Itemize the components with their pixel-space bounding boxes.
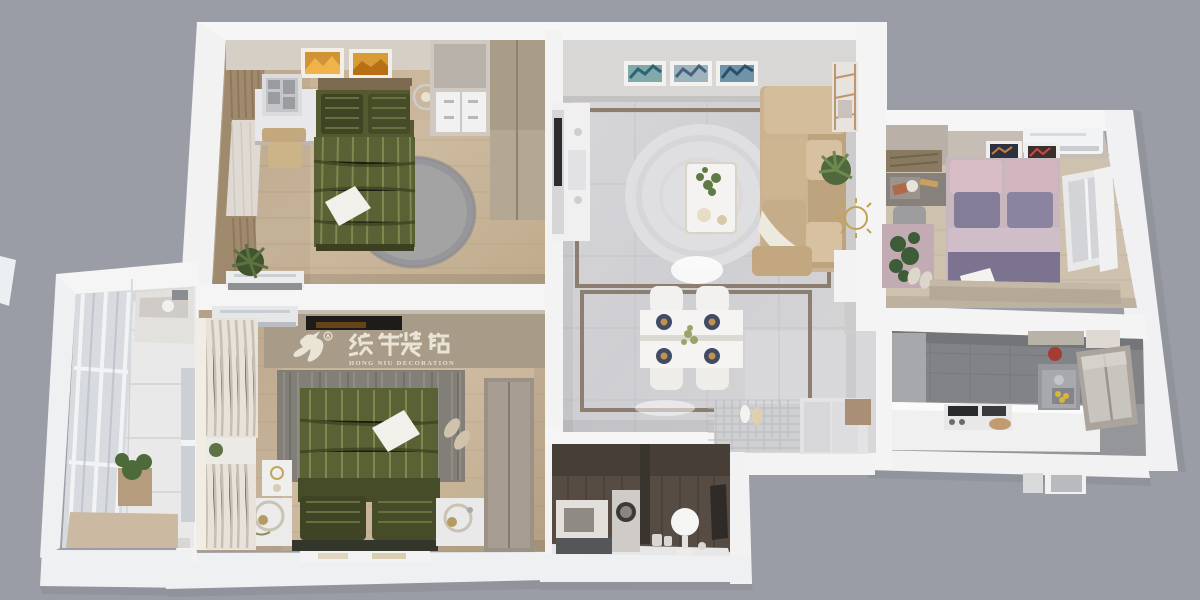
svg-text:HONG NIU DECORATION: HONG NIU DECORATION	[349, 360, 455, 367]
